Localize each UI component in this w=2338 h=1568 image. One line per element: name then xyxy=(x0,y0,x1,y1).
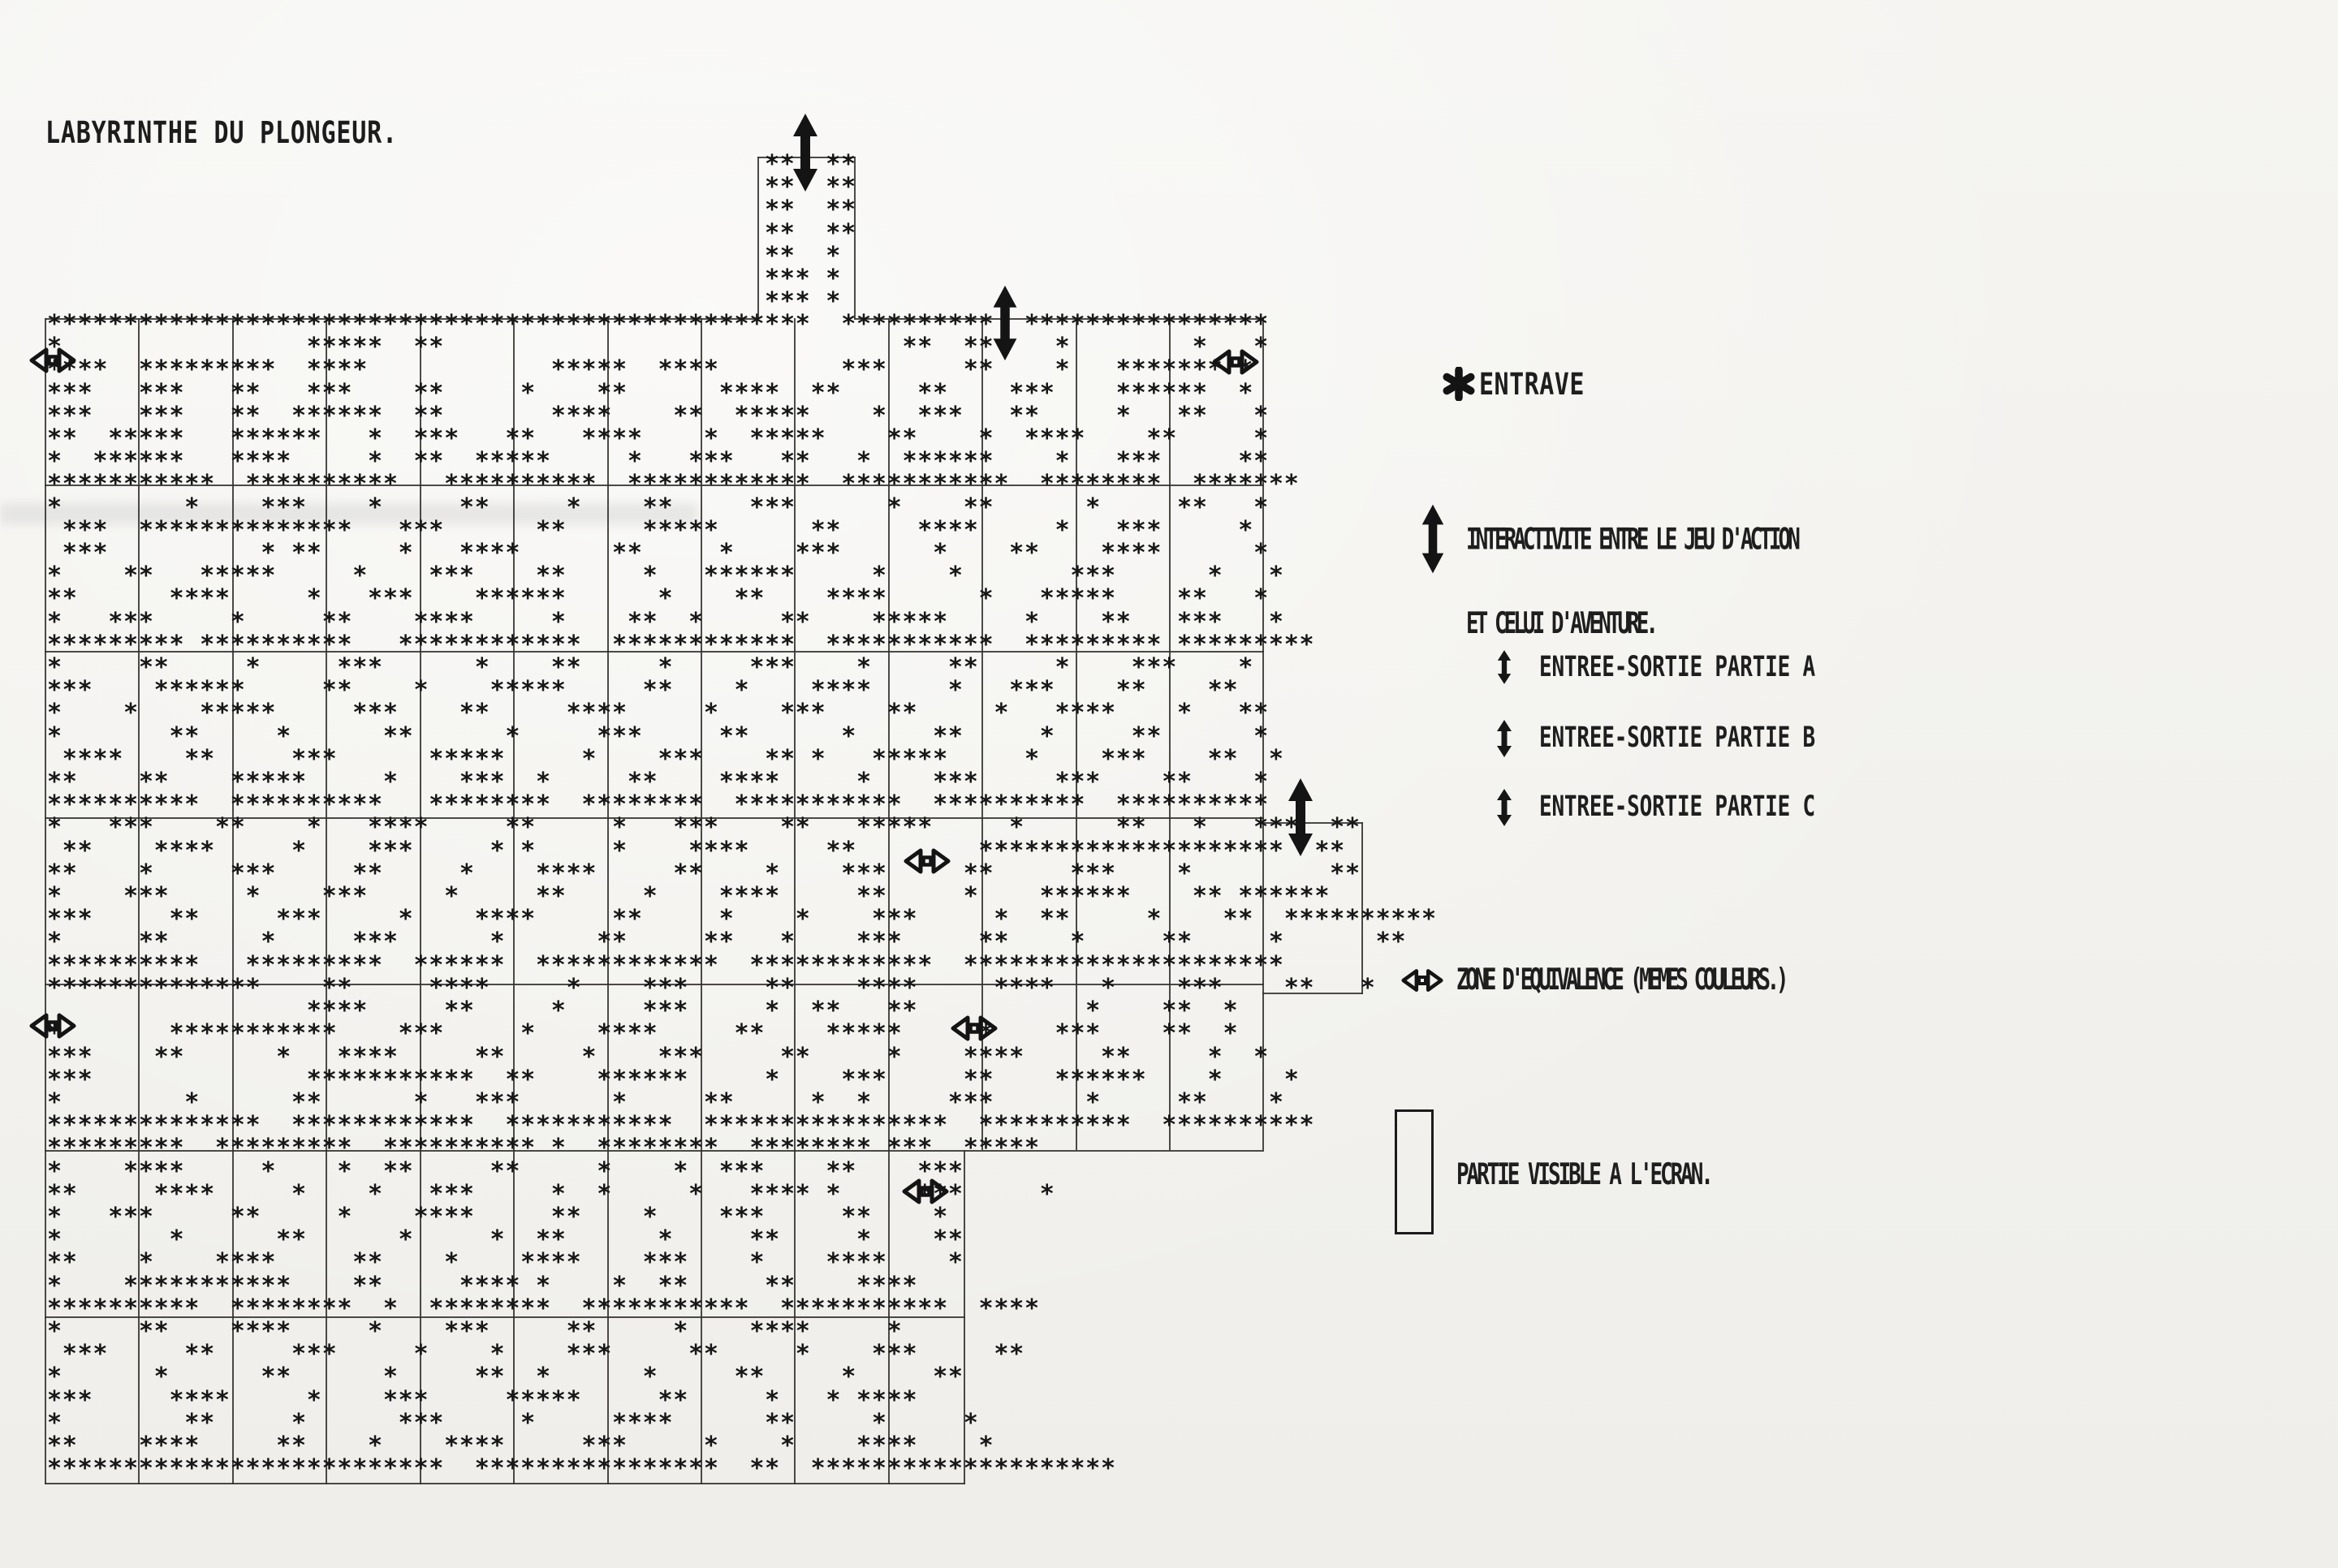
big-arrow-icon-chimney xyxy=(792,112,819,193)
zone-arrow-icon-4 xyxy=(29,1011,76,1040)
zone-arrow-icon-6 xyxy=(902,1177,949,1206)
double-vertical-arrow-icon-c xyxy=(1495,788,1514,827)
double-vertical-arrow-icon-a xyxy=(1496,649,1512,685)
legend-entree-c-label: ENTREE-SORTIE PARTIE C xyxy=(1539,790,1815,824)
legend-interactivite-label: INTERACTIVITE ENTRE LE JEU D'ACTION ET C… xyxy=(1466,519,1797,645)
zone-arrow-icon-1 xyxy=(29,346,76,375)
legend-entree-b-label: ENTREE-SORTIE PARTIE B xyxy=(1539,722,1815,755)
big-arrow-icon-right xyxy=(1287,773,1314,862)
legend-interactivite-line2: ET CELUI D'AVENTURE. xyxy=(1466,607,1655,641)
double-vertical-arrow-icon-b xyxy=(1495,719,1514,758)
maze-grid-line xyxy=(45,1483,965,1484)
large-double-vertical-arrow-icon xyxy=(1421,498,1445,579)
double-horizontal-arrow-outline-icon xyxy=(1401,964,1443,997)
zone-arrow-icon-5 xyxy=(951,1014,998,1043)
legend-partie-visible-label: PARTIE VISIBLE A L'ECRAN. xyxy=(1456,1158,1711,1192)
rectangle-outline-icon xyxy=(1395,1109,1434,1234)
page-title: LABYRINTHE DU PLONGEUR. xyxy=(45,115,398,151)
heavy-asterisk-icon xyxy=(1442,367,1476,401)
legend-entree-a-label: ENTREE-SORTIE PARTIE A xyxy=(1539,651,1815,684)
legend-zone-label: ZONE D'EQUIVALENCE (MEMES COULEURS.) xyxy=(1456,963,1785,997)
legend-interactivite-line1: INTERACTIVITE ENTRE LE JEU D'ACTION xyxy=(1466,523,1797,557)
maze-grid-line xyxy=(757,157,759,319)
maze-ascii: ****************************************… xyxy=(47,313,1452,1480)
big-arrow-icon-top xyxy=(991,284,1019,362)
zone-arrow-icon-2 xyxy=(1212,347,1259,377)
zone-arrow-icon-3 xyxy=(904,846,951,876)
legend-entrave-label: ENTRAVE xyxy=(1479,367,1585,403)
